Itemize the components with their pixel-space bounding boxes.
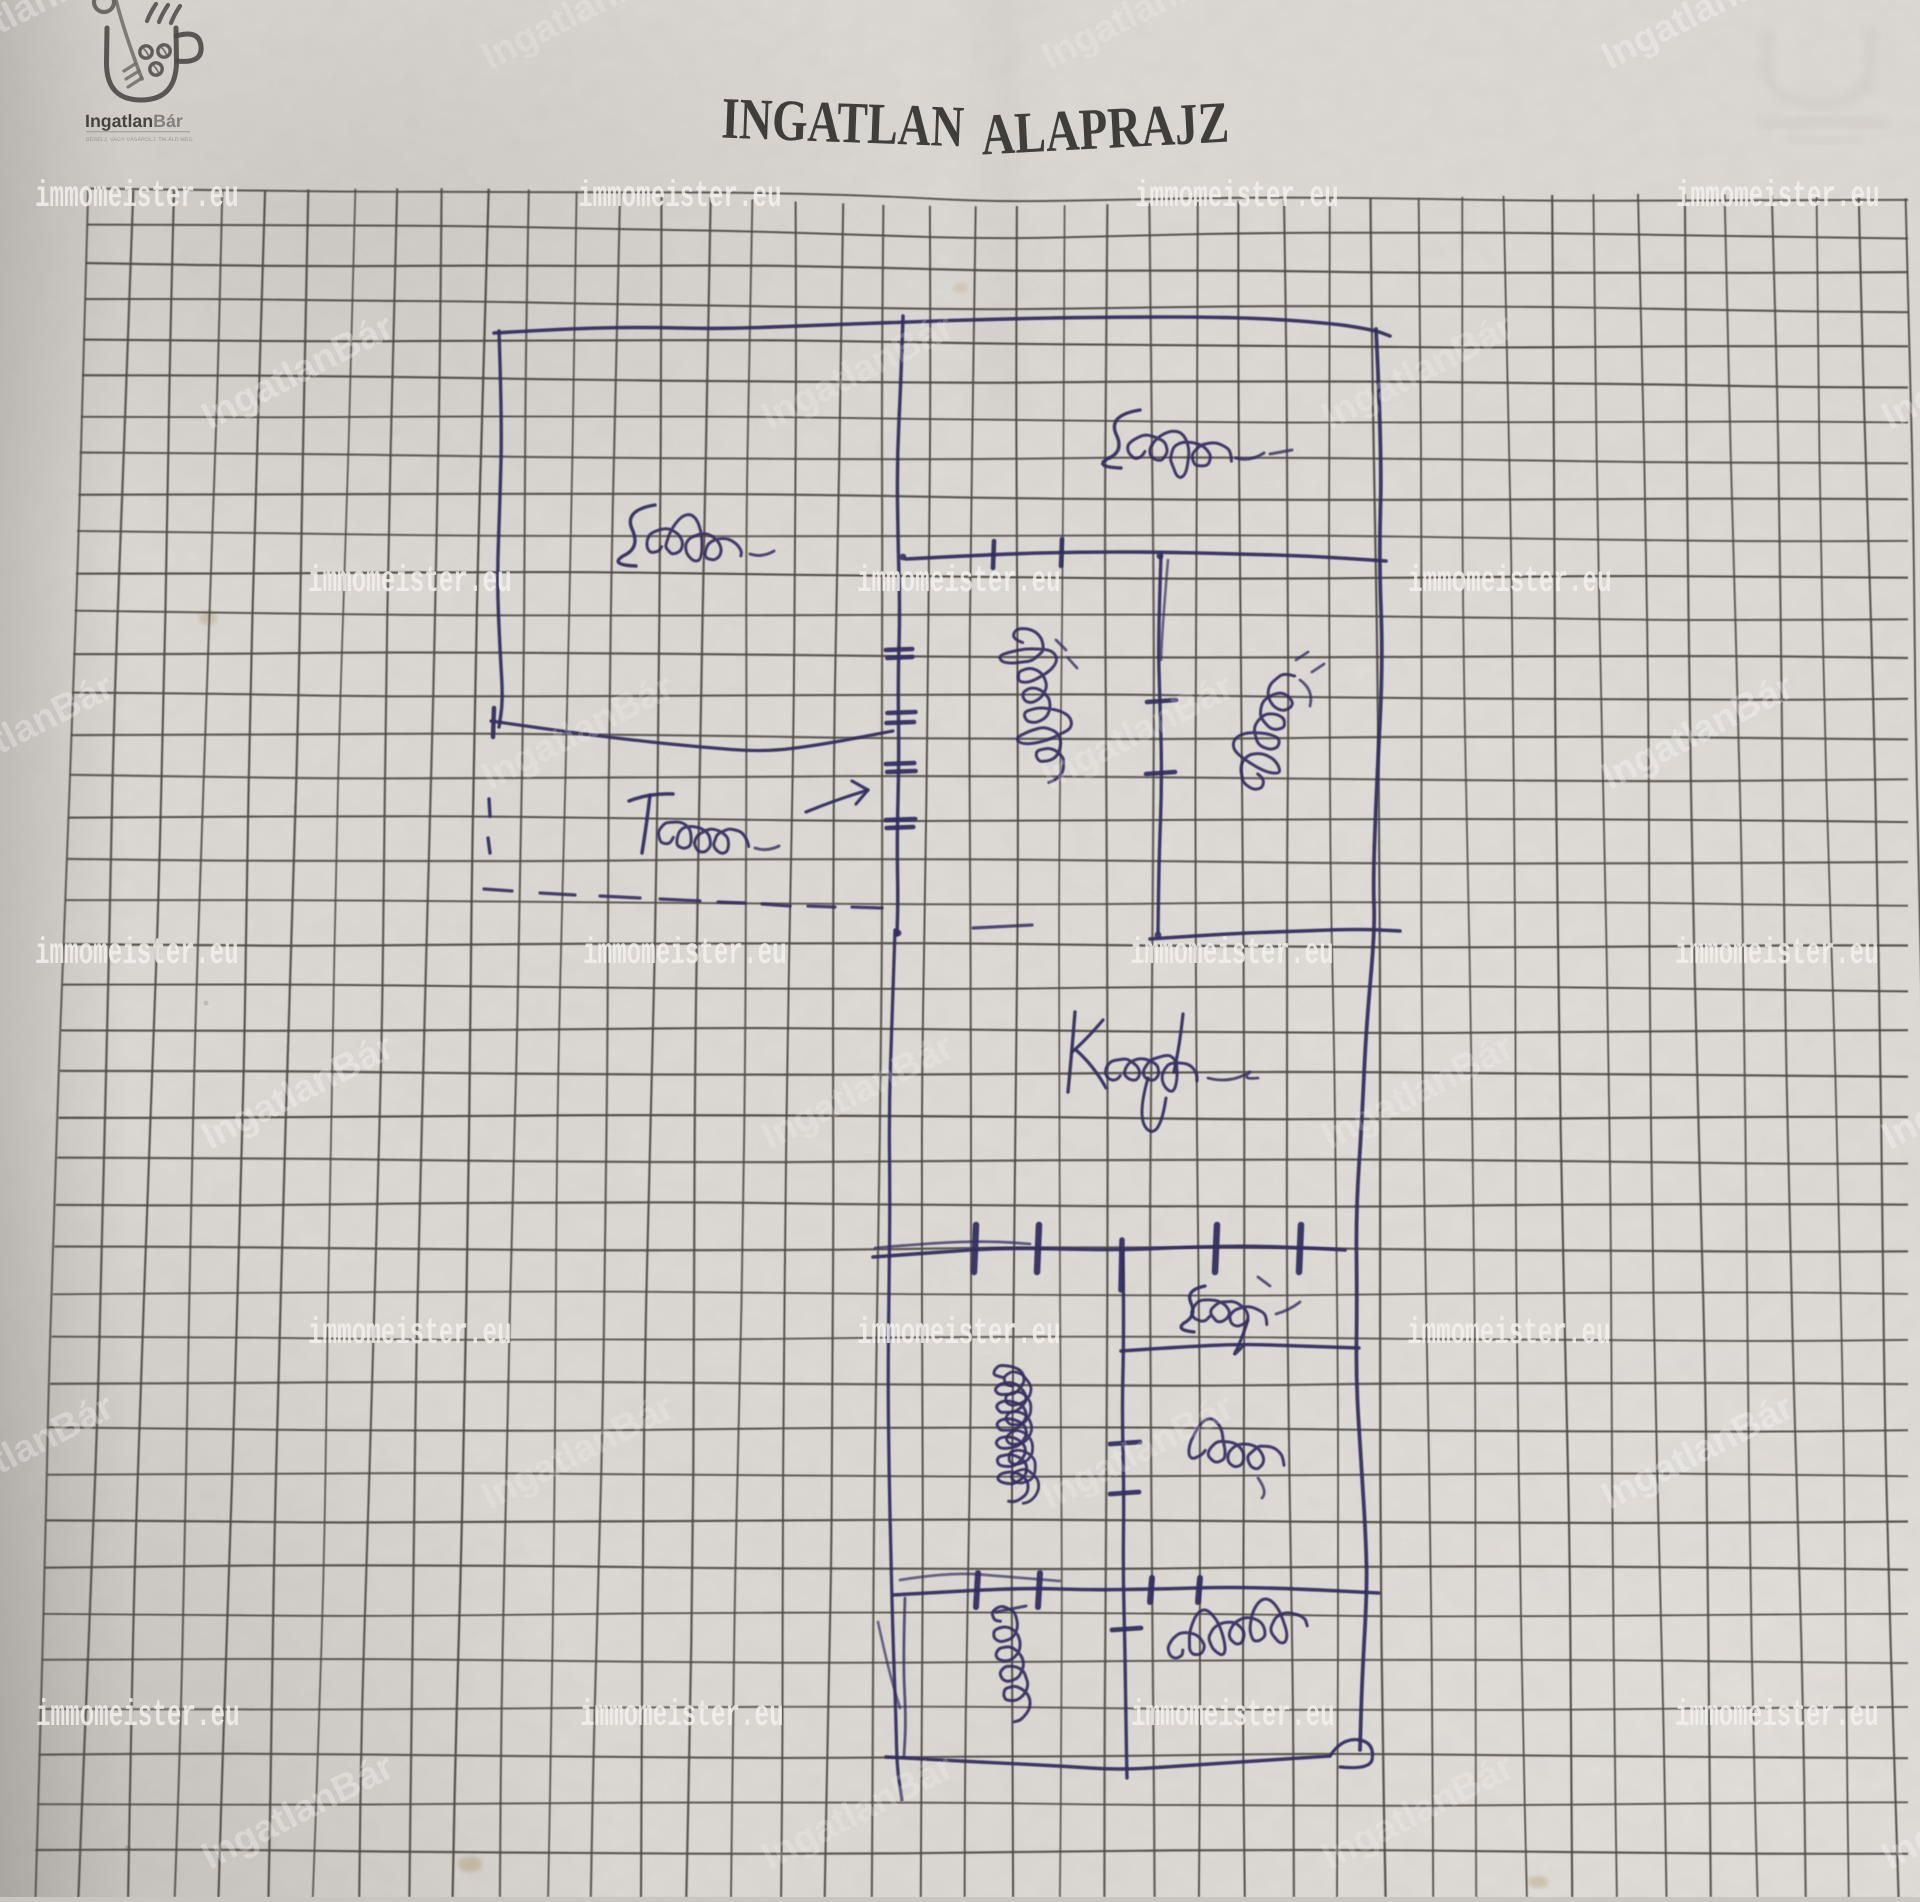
- svg-text:immomeister.eu: immomeister.eu: [308, 1313, 512, 1355]
- svg-text:immomeister.eu: immomeister.eu: [583, 933, 787, 975]
- svg-text:BÉRELJ, VAGY VÁSÁROLJ. TALÁLD: BÉRELJ, VAGY VÁSÁROLJ. TALÁLD MEG: [86, 136, 193, 143]
- svg-text:immomeister.eu: immomeister.eu: [857, 561, 1061, 603]
- svg-text:immomeister.eu: immomeister.eu: [1130, 933, 1334, 975]
- svg-text:immomeister.eu: immomeister.eu: [35, 933, 239, 975]
- svg-text:immomeister.eu: immomeister.eu: [857, 1313, 1061, 1355]
- svg-text:immomeister.eu: immomeister.eu: [35, 176, 239, 218]
- svg-text:ALAPRAJZ: ALAPRAJZ: [979, 90, 1230, 168]
- svg-text:immomeister.eu: immomeister.eu: [1407, 1313, 1611, 1355]
- svg-text:immomeister.eu: immomeister.eu: [578, 176, 782, 218]
- svg-text:immomeister.eu: immomeister.eu: [580, 1695, 784, 1737]
- svg-text:immomeister.eu: immomeister.eu: [1131, 1695, 1335, 1737]
- svg-text:immomeister.eu: immomeister.eu: [1135, 176, 1339, 218]
- svg-text:immomeister.eu: immomeister.eu: [1675, 1695, 1879, 1737]
- svg-text:immomeister.eu: immomeister.eu: [308, 561, 512, 603]
- svg-text:INGATLAN: INGATLAN: [720, 86, 965, 160]
- svg-text:immomeister.eu: immomeister.eu: [1408, 561, 1612, 603]
- svg-text:immomeister.eu: immomeister.eu: [1675, 933, 1879, 975]
- svg-text:immomeister.eu: immomeister.eu: [36, 1695, 240, 1737]
- svg-text:immomeister.eu: immomeister.eu: [1676, 176, 1880, 218]
- svg-text:IngatlanBár: IngatlanBár: [85, 111, 183, 131]
